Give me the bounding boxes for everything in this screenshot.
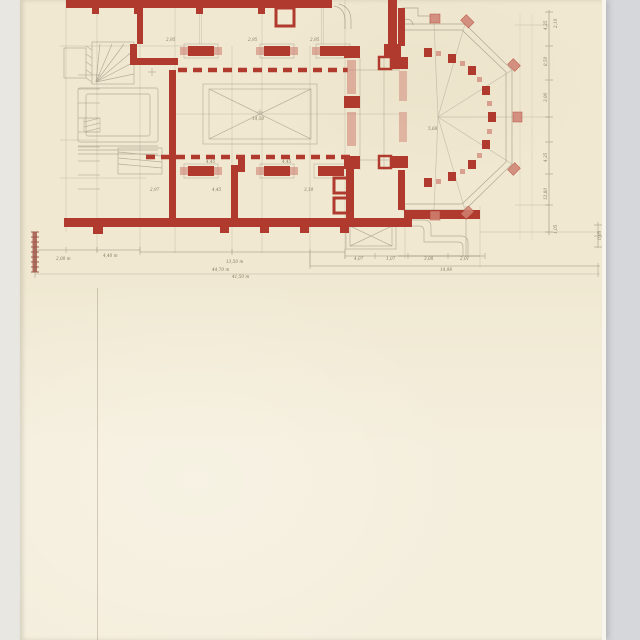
dimension-label: 14,98 xyxy=(440,267,452,272)
dimension-label: 41,50 m xyxy=(231,274,249,279)
dimension-label: 3,90 xyxy=(543,92,548,102)
dimension-label: 4,45 xyxy=(205,159,216,164)
dimension-label: 44,70 m xyxy=(211,267,229,272)
crossing-and-transept xyxy=(344,0,408,218)
apse-outer-wall xyxy=(334,4,512,210)
bottom-dimension-lines xyxy=(35,245,600,278)
north-wall xyxy=(66,0,332,44)
dimension-label: 13,50 m xyxy=(226,259,243,264)
right-dimension-labels: 4,352,108,503,904,3512,801,050,95 xyxy=(543,18,602,240)
dimension-label: 1,07 xyxy=(386,256,396,261)
dimension-label: 4,40 m xyxy=(102,253,118,258)
dimension-label: 4,07 xyxy=(353,256,364,261)
scanned-architectural-drawing: 2,952,952,9514,504,454,452,974,453,105,6… xyxy=(0,0,640,640)
dimension-label: 14,50 xyxy=(252,116,264,121)
dimension-label: 2,10 xyxy=(553,18,558,29)
floor-plan-drawing: 2,952,952,9514,504,454,452,974,453,105,6… xyxy=(0,0,640,640)
apse-colonnade xyxy=(424,48,496,187)
dimension-label: 3,08 xyxy=(424,256,434,261)
dimension-label: 0,95 xyxy=(597,230,602,240)
dimension-label: 2,01 xyxy=(459,256,469,261)
dimension-label: 4,35 xyxy=(543,152,548,163)
dimension-label: 2,95 xyxy=(165,37,176,42)
south-arcade-piers xyxy=(180,166,344,176)
dimension-label: 12,80 xyxy=(543,188,548,200)
dimension-label: 8,50 xyxy=(543,56,548,66)
dimension-label: 2,95 xyxy=(309,37,320,42)
dimension-label: 3,10 xyxy=(304,187,314,192)
right-dimension-line xyxy=(545,10,602,248)
dimension-label: 4,35 xyxy=(543,20,548,31)
south-wall xyxy=(64,210,480,234)
north-arcade-piers xyxy=(130,44,354,65)
dimension-label: 4,45 xyxy=(211,187,222,192)
nave-west-wall xyxy=(169,70,176,158)
dimension-label: 1,05 xyxy=(553,224,558,234)
dimension-label: 2,97 xyxy=(149,187,160,192)
dimension-label: 2,08 m xyxy=(55,256,71,261)
dimension-label: 2,95 xyxy=(247,37,258,42)
dimension-label: 5,68 xyxy=(428,126,438,131)
dimension-label: 4,45 xyxy=(281,159,292,164)
